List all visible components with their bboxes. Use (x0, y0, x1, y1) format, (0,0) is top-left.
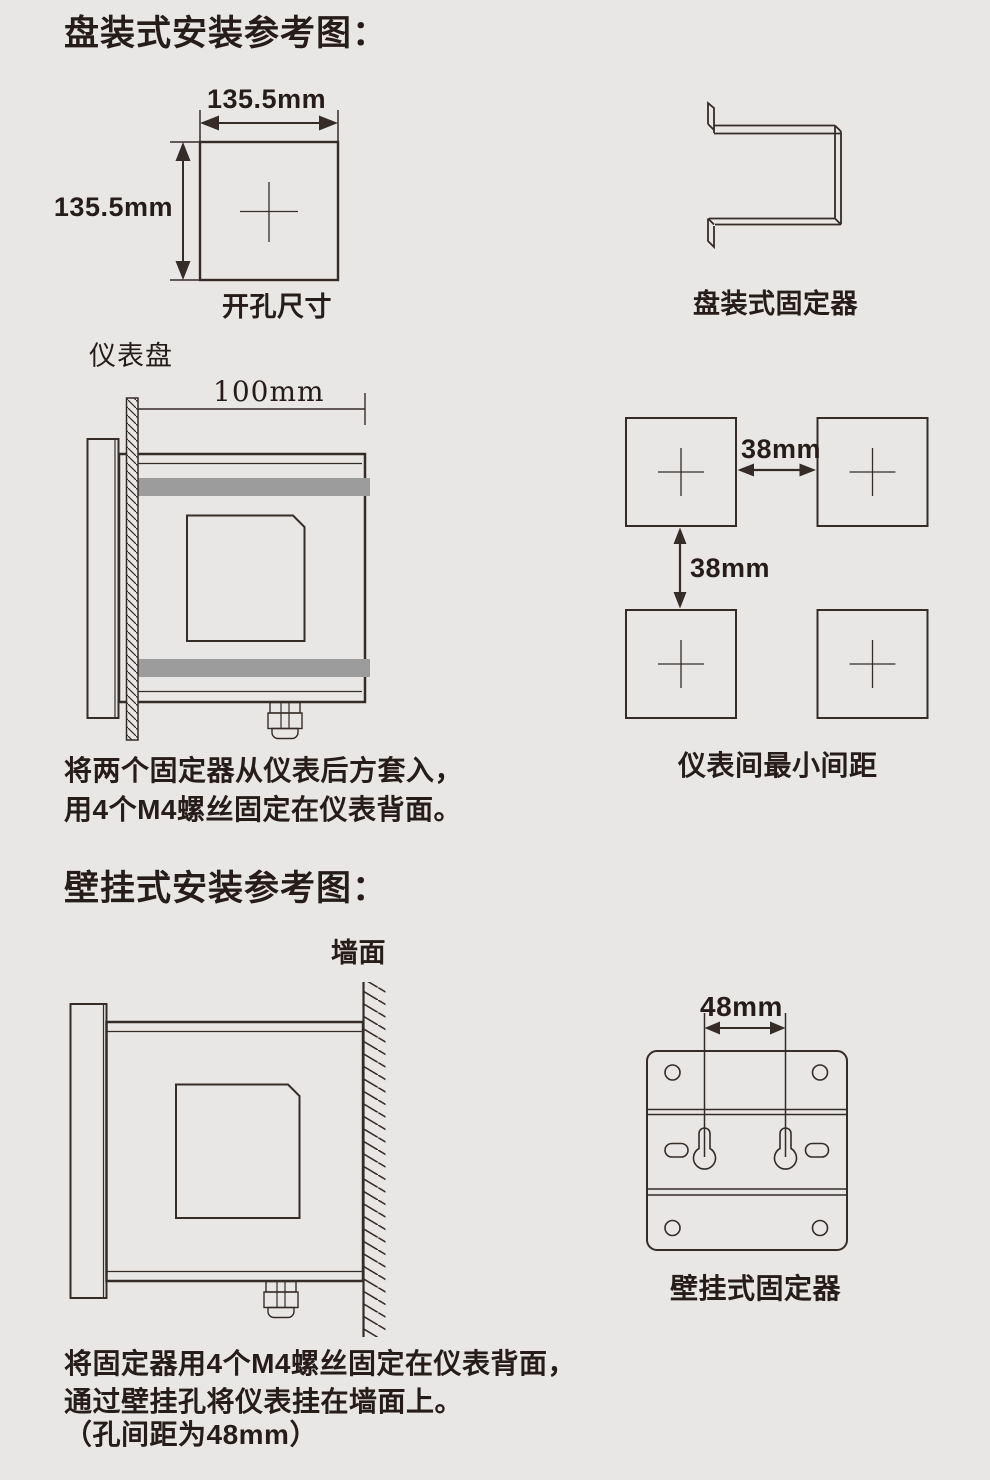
panel-hatch (127, 398, 139, 740)
manual-page: 盘装式安装参考图： 135.5mm 135.5mm 开孔尺寸 盘装式固定器 仪表… (0, 0, 990, 1480)
fixer-band-top (138, 478, 370, 496)
height-dimension-arrow (170, 142, 200, 280)
wall-note-line-1: 将固定器用4个M4螺丝固定在仪表背面， (64, 1350, 576, 1378)
instrument-label-plate (187, 516, 305, 642)
cutout-height-dim-label: 135.5mm (28, 194, 173, 221)
cutout-caption: 开孔尺寸 (222, 294, 332, 321)
cutout-width-dim-label: 135.5mm (207, 86, 326, 113)
panel-fixer-caption: 盘装式固定器 (693, 291, 858, 318)
instrument-label-plate (176, 1085, 300, 1219)
spacing-caption: 仪表间最小间距 (678, 752, 878, 780)
spacing-v-dim-label: 38mm (690, 555, 770, 582)
instrument-bezel (71, 1004, 107, 1298)
panel-note-line-2: 用4个M4螺丝固定在仪表背面。 (64, 796, 462, 824)
line-art (0, 0, 990, 1480)
panel-note-line-1: 将两个固定器从仪表后方套入， (64, 757, 463, 785)
hole-pitch-dim-label: 48mm (700, 993, 783, 1021)
spacing-h-arrow (738, 464, 817, 477)
side-slot-left (665, 1144, 688, 1158)
spacing-h-dim-label: 38mm (741, 436, 821, 463)
panel-label: 仪表盘 (89, 343, 173, 370)
depth-dim-label: 100mm (213, 378, 325, 406)
cable-gland (264, 1282, 298, 1318)
panel-mount-title: 盘装式安装参考图： (64, 16, 388, 51)
spacing-v-arrow (674, 528, 687, 609)
side-slot-right (806, 1144, 829, 1158)
cutout-diagram (170, 110, 338, 280)
instrument-bezel (88, 439, 119, 718)
wall-label: 墙面 (331, 940, 386, 967)
fixer-band-bottom (138, 659, 370, 677)
panel-side-view-diagram (88, 393, 371, 740)
wall-hatch (364, 982, 386, 1337)
wall-fixer-caption: 壁挂式固定器 (670, 1275, 841, 1303)
screw-holes (665, 1065, 828, 1236)
panel-fixer-diagram (708, 103, 841, 247)
crosshair-mark (240, 182, 298, 242)
cable-gland (268, 703, 302, 739)
hole-pitch-dimension (705, 1013, 786, 1157)
width-dimension-arrow (200, 110, 338, 142)
wall-mount-title: 壁挂式安装参考图： (64, 871, 388, 906)
wall-side-view-diagram (71, 982, 386, 1337)
wall-fixer-diagram (647, 1013, 847, 1250)
wall-note-line-2: 通过壁挂孔将仪表挂在墙面上。 (64, 1388, 463, 1416)
fixer-plate (647, 1051, 847, 1250)
wall-note-line-3: （孔间距为48mm） (64, 1421, 318, 1449)
instrument-body (107, 1022, 364, 1281)
